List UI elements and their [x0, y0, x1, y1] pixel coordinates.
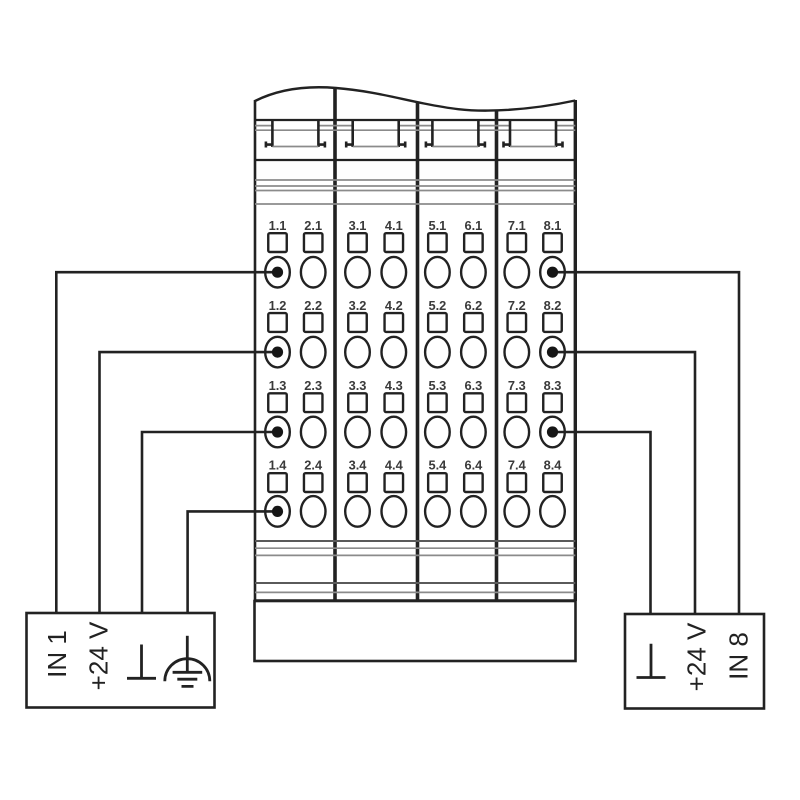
svg-text:+24 V: +24 V — [681, 622, 711, 691]
svg-text:5.3: 5.3 — [429, 378, 447, 393]
svg-text:6.4: 6.4 — [465, 457, 484, 472]
svg-text:6.1: 6.1 — [465, 218, 483, 233]
svg-text:2.2: 2.2 — [304, 298, 322, 313]
svg-text:4.1: 4.1 — [385, 218, 403, 233]
svg-text:5.4: 5.4 — [429, 457, 448, 472]
svg-text:3.4: 3.4 — [349, 457, 368, 472]
svg-text:IN 1: IN 1 — [42, 630, 72, 678]
svg-text:4.4: 4.4 — [385, 457, 404, 472]
svg-text:8.4: 8.4 — [544, 457, 563, 472]
svg-text:1.4: 1.4 — [269, 457, 288, 472]
svg-text:2.4: 2.4 — [304, 457, 323, 472]
svg-text:7.4: 7.4 — [508, 457, 527, 472]
svg-text:1.3: 1.3 — [269, 378, 287, 393]
svg-text:6.2: 6.2 — [465, 298, 483, 313]
svg-text:+24 V: +24 V — [83, 621, 113, 690]
svg-text:4.3: 4.3 — [385, 378, 403, 393]
svg-text:7.3: 7.3 — [508, 378, 526, 393]
svg-text:IN 8: IN 8 — [723, 632, 753, 680]
svg-text:4.2: 4.2 — [385, 298, 403, 313]
svg-text:3.1: 3.1 — [349, 218, 367, 233]
svg-text:5.2: 5.2 — [429, 298, 447, 313]
svg-text:2.3: 2.3 — [304, 378, 322, 393]
svg-text:3.2: 3.2 — [349, 298, 367, 313]
svg-text:3.3: 3.3 — [349, 378, 367, 393]
svg-text:1.1: 1.1 — [269, 218, 287, 233]
svg-text:8.2: 8.2 — [544, 298, 562, 313]
svg-text:2.1: 2.1 — [304, 218, 322, 233]
svg-text:1.2: 1.2 — [269, 298, 287, 313]
svg-text:7.1: 7.1 — [508, 218, 526, 233]
svg-text:7.2: 7.2 — [508, 298, 526, 313]
svg-text:6.3: 6.3 — [465, 378, 483, 393]
svg-text:8.3: 8.3 — [544, 378, 562, 393]
svg-text:5.1: 5.1 — [429, 218, 447, 233]
svg-text:8.1: 8.1 — [544, 218, 562, 233]
